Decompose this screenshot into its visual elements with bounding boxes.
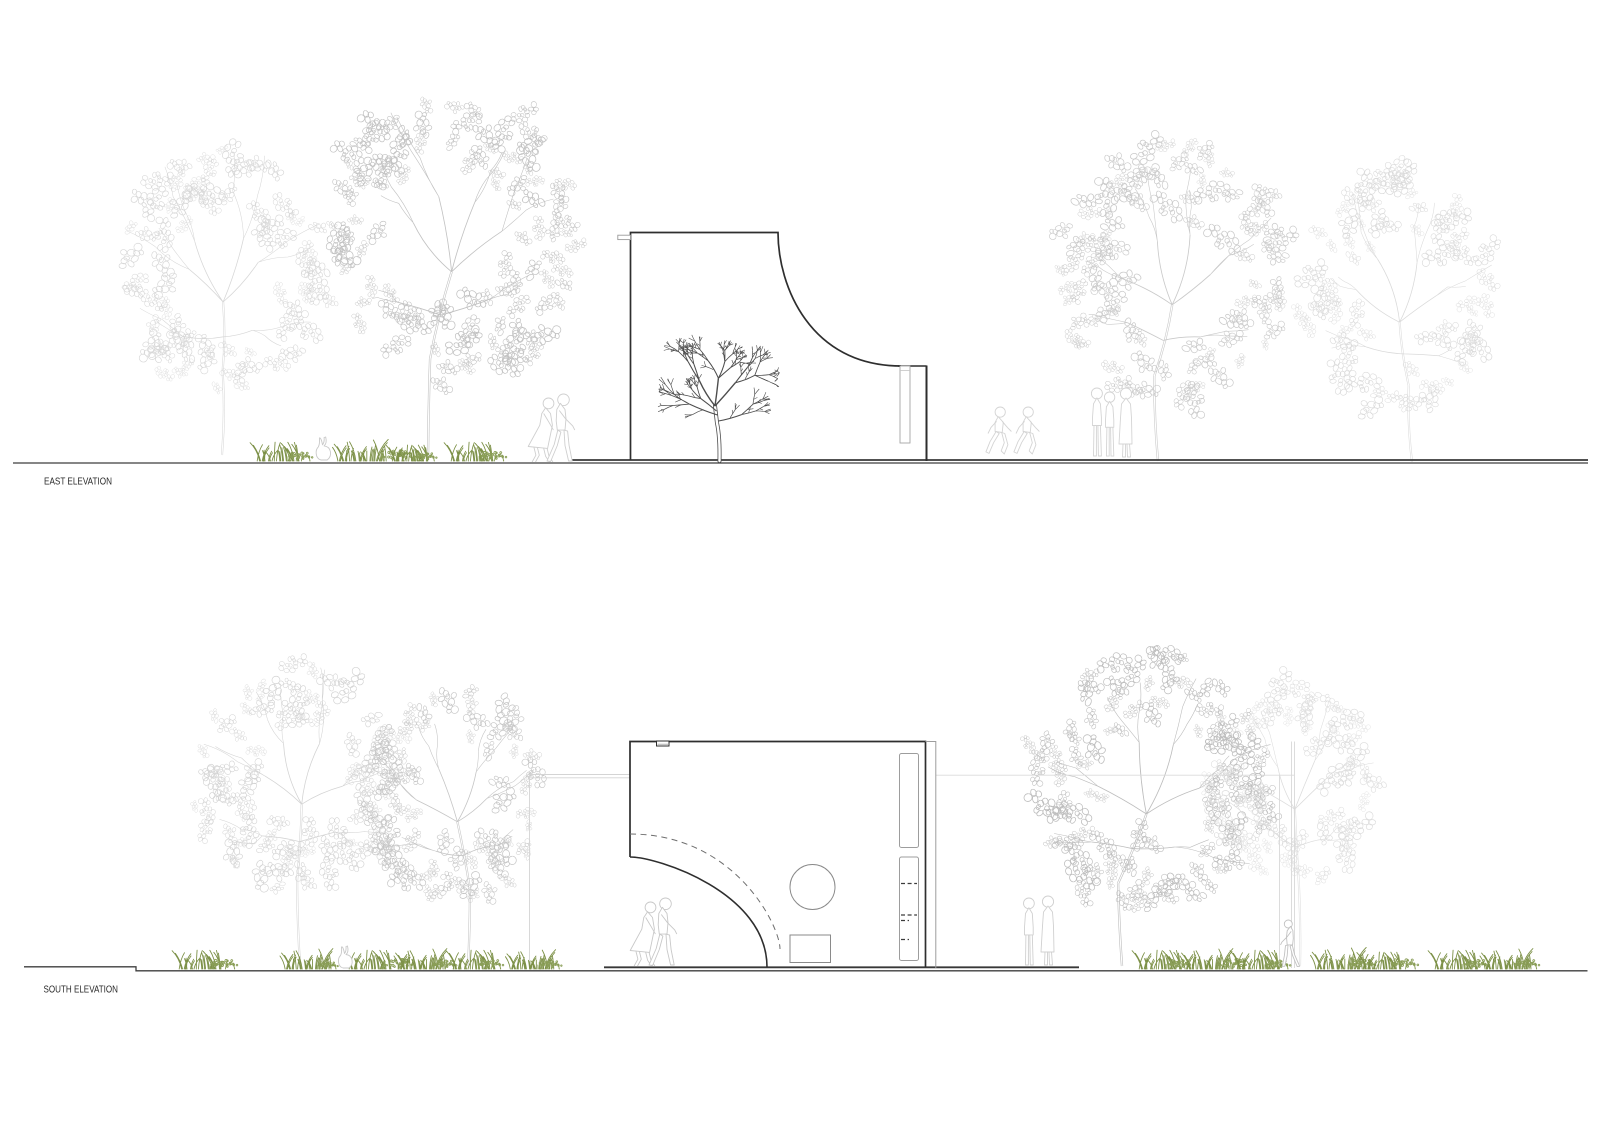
svg-text:EAST ELEVATION: EAST ELEVATION <box>44 477 112 488</box>
svg-text:SOUTH ELEVATION: SOUTH ELEVATION <box>44 985 119 996</box>
